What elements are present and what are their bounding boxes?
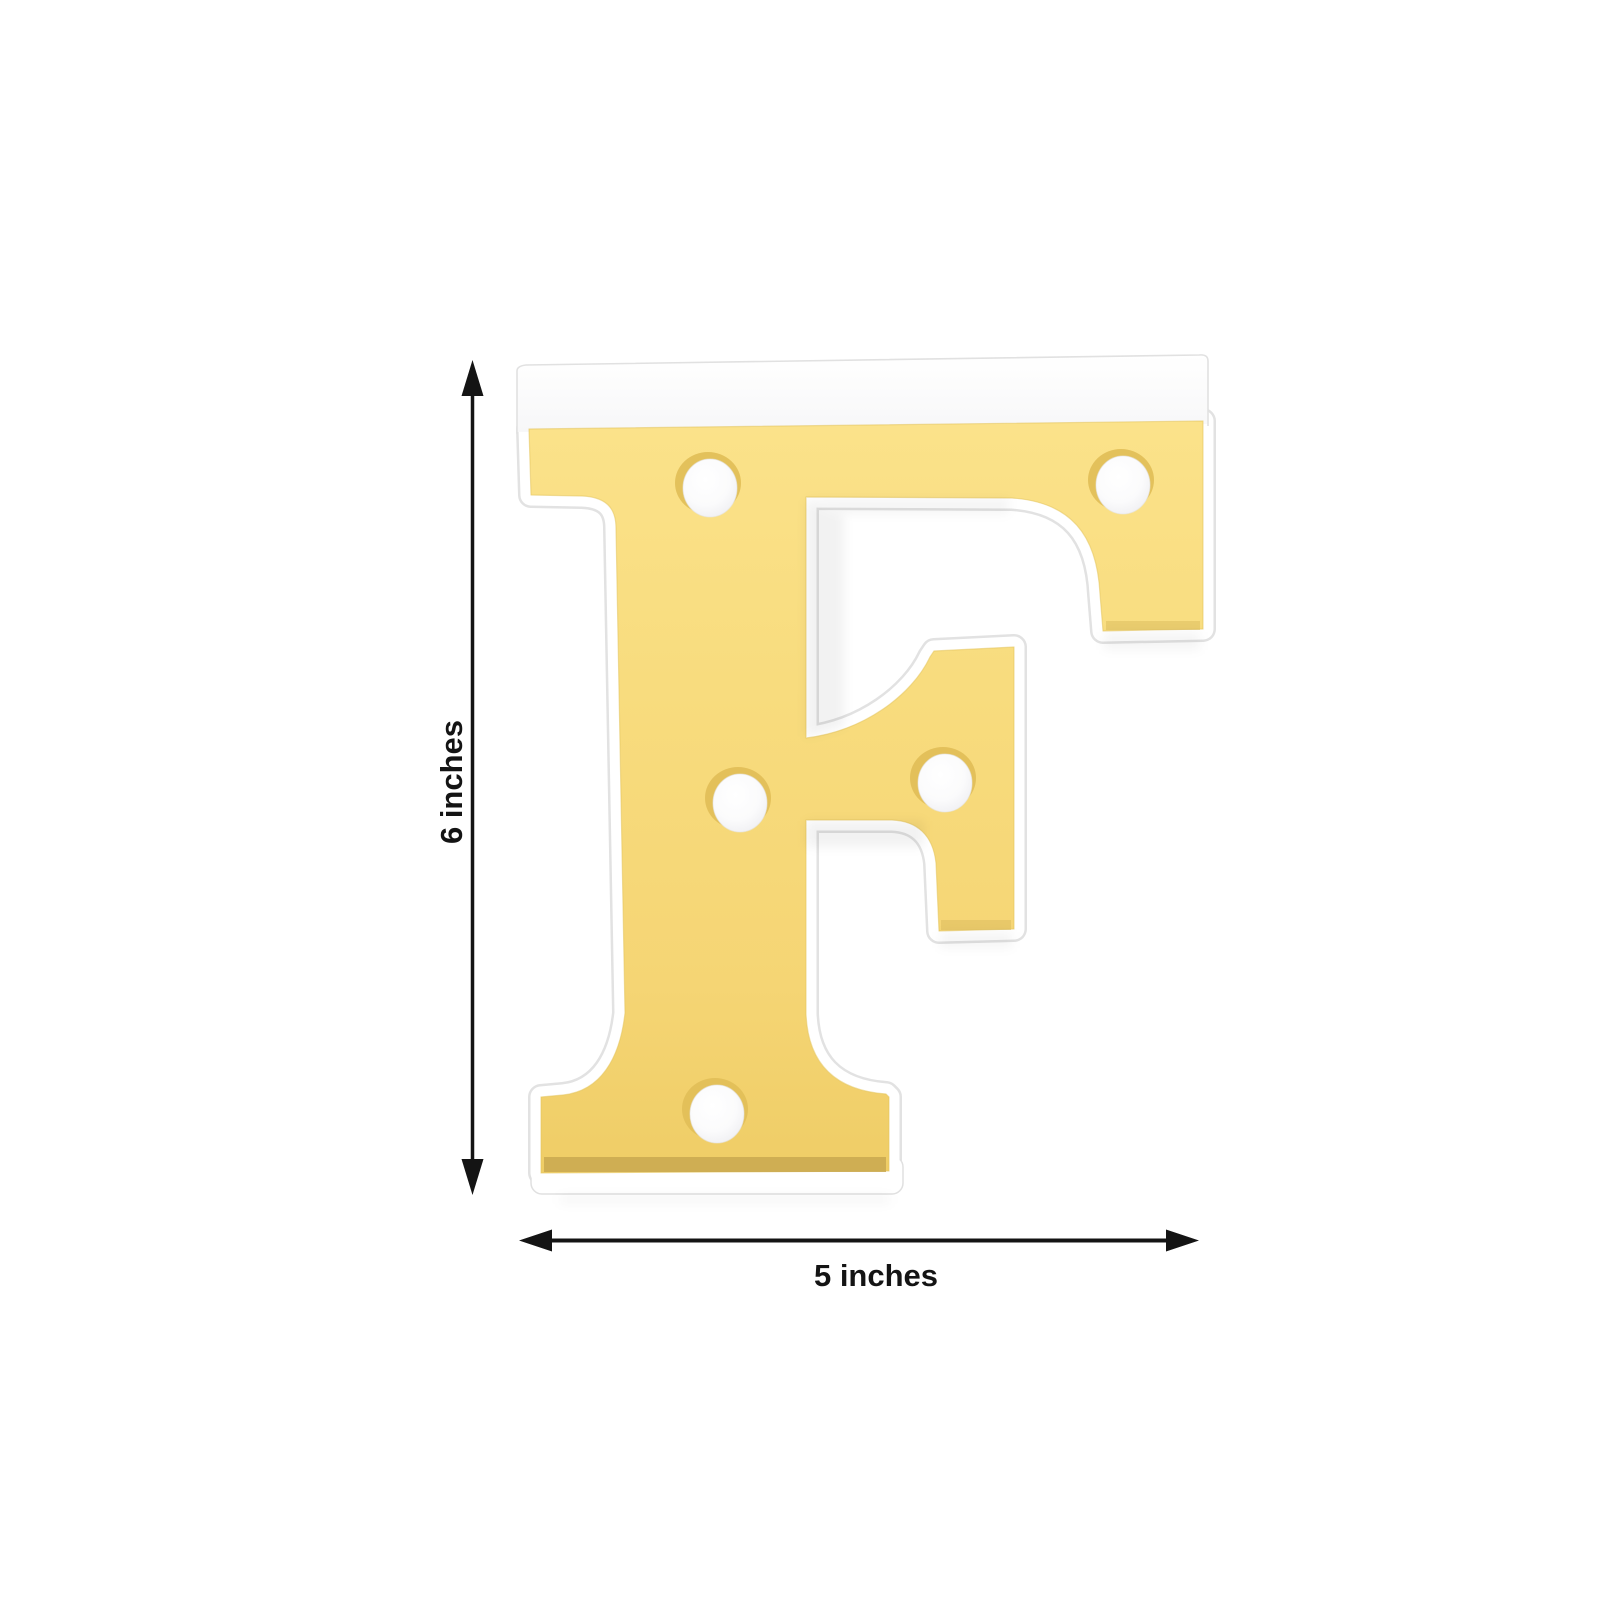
height-label: 6 inches [434,720,469,844]
serif-bottom-bevel-right [1106,621,1200,630]
product-dimension-diagram: 6 inches 5 inches [0,0,1600,1600]
width-dimension: 5 inches [519,1230,1199,1294]
height-dimension: 6 inches [434,360,484,1195]
diagram-canvas: 6 inches 5 inches [0,0,1600,1600]
arrow-head-down-icon [462,1159,484,1195]
serif-bottom-bevel-arm [941,920,1011,930]
arrow-head-up-icon [462,360,484,396]
marquee-letter-f [517,355,1208,1204]
letter-top-side [517,355,1208,432]
arrow-head-right-icon [1166,1230,1199,1252]
arrow-head-left-icon [519,1230,552,1252]
letter-face [529,421,1203,1173]
face-bottom-bevel [544,1157,886,1172]
width-label: 5 inches [814,1258,938,1293]
